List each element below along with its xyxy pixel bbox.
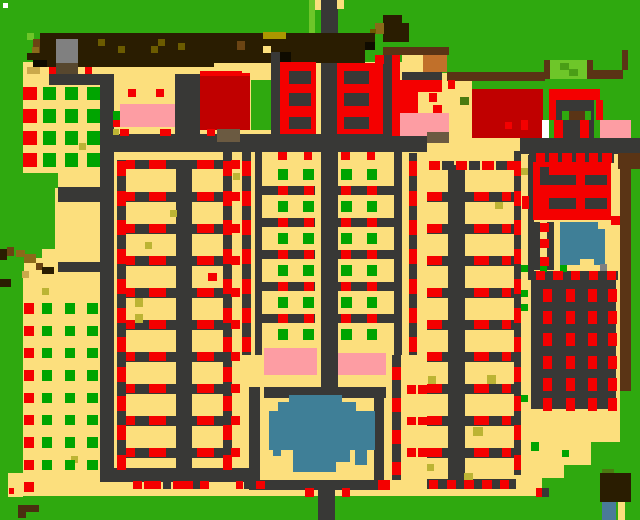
map-pixel — [540, 239, 549, 248]
map-pixel — [549, 89, 600, 100]
map-pixel — [223, 425, 232, 440]
map-pixel — [367, 152, 375, 160]
map-pixel — [304, 250, 314, 259]
map-pixel — [278, 233, 288, 243]
map-pixel — [56, 63, 79, 74]
map-pixel — [197, 352, 214, 361]
map-pixel — [24, 482, 34, 492]
map-pixel — [65, 303, 75, 313]
map-pixel — [341, 282, 351, 291]
map-pixel — [197, 288, 214, 297]
map-pixel — [588, 378, 597, 391]
map-pixel — [23, 131, 37, 145]
map-pixel — [304, 218, 314, 227]
map-pixel — [392, 462, 401, 476]
map-pixel — [42, 393, 52, 403]
map-pixel — [0, 188, 55, 249]
map-pixel — [374, 387, 383, 491]
map-pixel — [278, 169, 288, 179]
map-pixel — [588, 311, 597, 324]
map-pixel — [160, 129, 171, 136]
map-pixel — [540, 167, 549, 185]
map-pixel — [474, 448, 489, 457]
map-pixel — [418, 417, 427, 426]
map-pixel — [273, 449, 281, 456]
map-pixel — [113, 120, 120, 127]
map-pixel — [429, 480, 438, 489]
map-pixel — [427, 192, 442, 201]
map-pixel — [158, 39, 165, 46]
map-pixel — [407, 448, 416, 457]
map-pixel — [49, 74, 100, 84]
map-pixel — [24, 393, 34, 403]
map-pixel — [521, 290, 528, 297]
map-pixel — [418, 385, 427, 394]
map-pixel — [85, 67, 92, 75]
map-pixel — [117, 425, 126, 440]
map-pixel — [367, 233, 377, 243]
map-pixel — [409, 337, 417, 352]
map-pixel — [242, 279, 250, 294]
map-pixel — [344, 93, 369, 106]
map-pixel — [474, 288, 489, 297]
map-pixel — [383, 55, 392, 136]
map-pixel — [87, 87, 101, 101]
map-pixel — [126, 224, 135, 233]
map-pixel — [427, 256, 442, 265]
map-pixel — [341, 169, 351, 179]
map-pixel — [126, 384, 135, 393]
map-pixel — [24, 348, 34, 358]
map-pixel — [407, 385, 416, 394]
map-pixel — [23, 62, 105, 496]
map-pixel — [427, 320, 442, 329]
map-pixel — [42, 348, 52, 358]
map-pixel — [22, 271, 29, 278]
map-pixel — [117, 161, 126, 176]
map-pixel — [65, 326, 75, 336]
map-pixel — [409, 249, 417, 264]
map-pixel — [58, 187, 105, 202]
map-pixel — [549, 175, 576, 185]
map-pixel — [418, 448, 427, 457]
map-pixel — [447, 480, 456, 489]
map-pixel — [543, 311, 552, 324]
map-pixel — [542, 120, 549, 138]
map-pixel — [120, 129, 129, 136]
map-pixel — [472, 89, 543, 138]
map-pixel — [502, 448, 511, 457]
map-pixel — [98, 39, 105, 46]
map-pixel — [514, 396, 521, 411]
map-pixel — [256, 481, 265, 490]
map-pixel — [336, 450, 350, 462]
map-pixel — [144, 481, 160, 490]
map-pixel — [341, 265, 351, 275]
map-pixel — [303, 329, 313, 339]
map-pixel — [113, 129, 119, 135]
map-pixel — [87, 460, 97, 470]
map-pixel — [109, 134, 427, 152]
map-pixel — [126, 416, 135, 425]
map-pixel — [602, 502, 616, 520]
map-pixel — [598, 222, 605, 229]
map-pixel — [549, 198, 576, 208]
map-pixel — [197, 384, 214, 393]
map-pixel — [207, 129, 216, 136]
map-pixel — [117, 220, 126, 235]
game-map[interactable] — [0, 0, 640, 520]
map-pixel — [156, 89, 164, 97]
map-pixel — [24, 437, 34, 447]
map-pixel — [407, 417, 416, 426]
map-pixel — [236, 481, 243, 490]
map-pixel — [553, 271, 562, 280]
map-pixel — [149, 320, 166, 329]
map-pixel — [23, 109, 37, 123]
map-pixel — [341, 250, 351, 259]
map-pixel — [520, 138, 640, 154]
map-pixel — [278, 329, 288, 339]
map-pixel — [117, 367, 126, 382]
map-pixel — [392, 367, 401, 381]
map-pixel — [540, 257, 549, 266]
map-pixel — [580, 259, 594, 264]
map-pixel — [447, 72, 545, 81]
map-pixel — [569, 69, 579, 76]
map-pixel — [341, 297, 351, 307]
map-pixel — [607, 271, 616, 280]
map-pixel — [341, 218, 351, 227]
map-pixel — [43, 131, 57, 145]
map-pixel — [149, 288, 166, 297]
map-pixel — [448, 80, 455, 89]
map-pixel — [117, 308, 126, 323]
map-pixel — [602, 153, 611, 162]
map-pixel — [365, 33, 375, 42]
map-pixel — [120, 104, 175, 127]
map-pixel — [543, 378, 552, 391]
map-pixel — [402, 55, 424, 72]
map-pixel — [378, 480, 390, 490]
map-pixel — [566, 398, 575, 411]
map-pixel — [514, 455, 521, 470]
map-pixel — [87, 437, 97, 447]
map-pixel — [383, 47, 448, 56]
map-pixel — [43, 109, 57, 123]
map-pixel — [3, 3, 7, 7]
map-pixel — [242, 191, 250, 206]
map-pixel — [611, 216, 620, 225]
map-pixel — [429, 161, 440, 170]
map-pixel — [87, 370, 97, 380]
map-pixel — [149, 416, 166, 425]
map-pixel — [242, 308, 250, 323]
map-pixel — [271, 52, 280, 134]
map-pixel — [427, 448, 442, 457]
map-pixel — [522, 196, 529, 210]
map-pixel — [514, 249, 521, 264]
map-pixel — [117, 279, 126, 294]
map-pixel — [429, 93, 437, 101]
map-pixel — [7, 247, 14, 256]
map-pixel — [423, 55, 447, 72]
map-pixel — [367, 282, 377, 291]
map-pixel — [178, 43, 185, 50]
map-pixel — [42, 303, 52, 313]
map-pixel — [608, 311, 617, 324]
map-pixel — [231, 160, 240, 169]
map-pixel — [242, 249, 250, 264]
map-pixel — [304, 186, 314, 195]
map-pixel — [309, 0, 315, 33]
map-pixel — [608, 356, 617, 369]
map-pixel — [533, 222, 540, 271]
map-pixel — [126, 256, 135, 265]
map-pixel — [442, 161, 453, 170]
map-pixel — [208, 273, 217, 282]
map-pixel — [149, 384, 166, 393]
map-pixel — [65, 87, 79, 101]
map-pixel — [242, 161, 250, 176]
map-pixel — [620, 169, 631, 391]
map-pixel — [543, 356, 552, 369]
map-pixel — [314, 0, 321, 10]
map-pixel — [289, 71, 311, 84]
map-pixel — [543, 289, 552, 302]
map-pixel — [237, 41, 245, 49]
map-pixel — [514, 425, 521, 440]
map-pixel — [117, 249, 126, 264]
map-pixel — [197, 224, 214, 233]
map-pixel — [514, 191, 521, 206]
map-pixel — [474, 256, 489, 265]
map-pixel — [151, 46, 158, 53]
map-pixel — [303, 201, 313, 211]
map-pixel — [321, 152, 338, 387]
map-pixel — [618, 153, 640, 169]
map-pixel — [464, 473, 473, 480]
map-pixel — [554, 120, 562, 138]
map-pixel — [197, 416, 214, 425]
map-pixel — [87, 393, 97, 403]
map-pixel — [278, 186, 288, 195]
map-pixel — [502, 416, 511, 425]
map-pixel — [566, 289, 575, 302]
map-pixel — [135, 298, 144, 307]
map-pixel — [278, 297, 288, 307]
map-pixel — [65, 437, 75, 447]
map-pixel — [318, 480, 335, 520]
map-pixel — [502, 352, 511, 361]
map-pixel — [342, 488, 351, 497]
map-pixel — [128, 89, 136, 97]
map-pixel — [502, 320, 511, 329]
map-pixel — [338, 353, 386, 376]
map-pixel — [231, 288, 240, 297]
map-pixel — [367, 297, 377, 307]
map-pixel — [231, 448, 240, 457]
map-pixel — [87, 326, 97, 336]
map-pixel — [149, 224, 166, 233]
map-pixel — [9, 488, 15, 494]
map-pixel — [456, 161, 467, 170]
map-pixel — [549, 100, 556, 120]
map-pixel — [126, 352, 135, 361]
map-pixel — [474, 416, 489, 425]
map-pixel — [514, 367, 521, 382]
map-pixel — [460, 97, 469, 106]
map-pixel — [427, 464, 434, 471]
map-pixel — [304, 314, 314, 323]
map-pixel — [392, 398, 401, 412]
map-pixel — [448, 165, 465, 480]
map-pixel — [367, 265, 377, 275]
map-pixel — [43, 87, 57, 101]
map-pixel — [584, 111, 591, 120]
map-pixel — [242, 337, 250, 352]
map-pixel — [473, 427, 482, 436]
map-pixel — [608, 289, 617, 302]
map-pixel — [126, 160, 135, 169]
map-pixel — [514, 220, 521, 235]
map-pixel — [303, 169, 313, 179]
map-pixel — [231, 224, 240, 233]
map-pixel — [126, 192, 135, 201]
map-pixel — [521, 304, 528, 311]
map-pixel — [566, 356, 575, 369]
map-pixel — [65, 348, 75, 358]
map-pixel — [608, 398, 617, 411]
map-pixel — [27, 67, 41, 74]
map-pixel — [566, 311, 575, 324]
map-pixel — [474, 320, 489, 329]
map-pixel — [560, 63, 569, 70]
map-pixel — [197, 160, 214, 169]
map-pixel — [24, 254, 36, 263]
map-pixel — [576, 153, 585, 162]
map-pixel — [409, 308, 417, 323]
map-pixel — [341, 314, 351, 323]
map-pixel — [409, 191, 417, 206]
map-pixel — [18, 511, 26, 518]
map-pixel — [303, 297, 313, 307]
map-pixel — [367, 314, 377, 323]
map-pixel — [549, 153, 558, 162]
map-pixel — [514, 308, 521, 323]
map-pixel — [562, 450, 569, 457]
map-pixel — [58, 262, 105, 272]
map-pixel — [79, 143, 86, 150]
map-pixel — [588, 356, 597, 369]
map-pixel — [392, 430, 401, 444]
map-pixel — [42, 370, 52, 380]
map-pixel — [43, 153, 57, 167]
map-pixel — [321, 63, 338, 134]
map-pixel — [200, 76, 250, 131]
map-pixel — [126, 448, 135, 457]
map-pixel — [87, 348, 97, 358]
map-pixel — [427, 132, 450, 142]
map-pixel — [521, 168, 528, 175]
map-pixel — [367, 250, 377, 259]
map-pixel — [417, 80, 442, 92]
map-pixel — [24, 460, 34, 470]
map-pixel — [536, 271, 545, 280]
map-pixel — [474, 384, 489, 393]
map-pixel — [303, 233, 313, 243]
map-pixel — [233, 173, 240, 180]
map-pixel — [197, 448, 214, 457]
map-pixel — [289, 93, 311, 106]
map-pixel — [341, 233, 351, 243]
map-pixel — [600, 120, 631, 138]
map-pixel — [24, 326, 34, 336]
map-pixel — [402, 23, 409, 42]
map-pixel — [502, 256, 511, 265]
map-pixel — [464, 480, 473, 489]
map-pixel — [608, 333, 617, 346]
map-pixel — [337, 0, 344, 9]
map-pixel — [87, 303, 97, 313]
map-pixel — [482, 161, 493, 170]
map-pixel — [176, 161, 192, 468]
map-pixel — [540, 223, 549, 232]
map-pixel — [278, 250, 288, 259]
map-pixel — [231, 416, 240, 425]
map-pixel — [367, 169, 377, 179]
map-pixel — [117, 337, 126, 352]
map-pixel — [145, 242, 152, 249]
map-pixel — [521, 265, 528, 272]
map-pixel — [521, 120, 528, 130]
map-pixel — [592, 70, 622, 79]
map-pixel — [585, 175, 607, 185]
map-pixel — [571, 271, 580, 280]
map-pixel — [49, 67, 56, 75]
map-pixel — [126, 320, 135, 329]
map-pixel — [65, 131, 79, 145]
map-pixel — [566, 378, 575, 391]
map-pixel — [42, 267, 53, 274]
map-pixel — [341, 201, 351, 211]
map-pixel — [569, 111, 585, 120]
map-pixel — [56, 39, 79, 63]
map-pixel — [600, 473, 631, 502]
map-pixel — [197, 192, 214, 201]
map-pixel — [278, 282, 288, 291]
map-pixel — [304, 152, 312, 160]
map-pixel — [24, 303, 34, 313]
map-pixel — [367, 186, 377, 195]
map-pixel — [263, 32, 285, 39]
map-pixel — [474, 224, 489, 233]
map-pixel — [65, 370, 75, 380]
map-pixel — [469, 161, 480, 170]
map-pixel — [149, 192, 166, 201]
map-pixel — [409, 161, 417, 176]
map-pixel — [514, 279, 521, 294]
map-pixel — [562, 153, 571, 162]
map-pixel — [543, 398, 552, 411]
map-pixel — [375, 23, 384, 33]
map-pixel — [197, 256, 214, 265]
map-pixel — [65, 415, 75, 425]
map-pixel — [355, 450, 367, 465]
map-pixel — [427, 352, 442, 361]
map-pixel — [367, 201, 377, 211]
map-pixel — [0, 249, 7, 260]
